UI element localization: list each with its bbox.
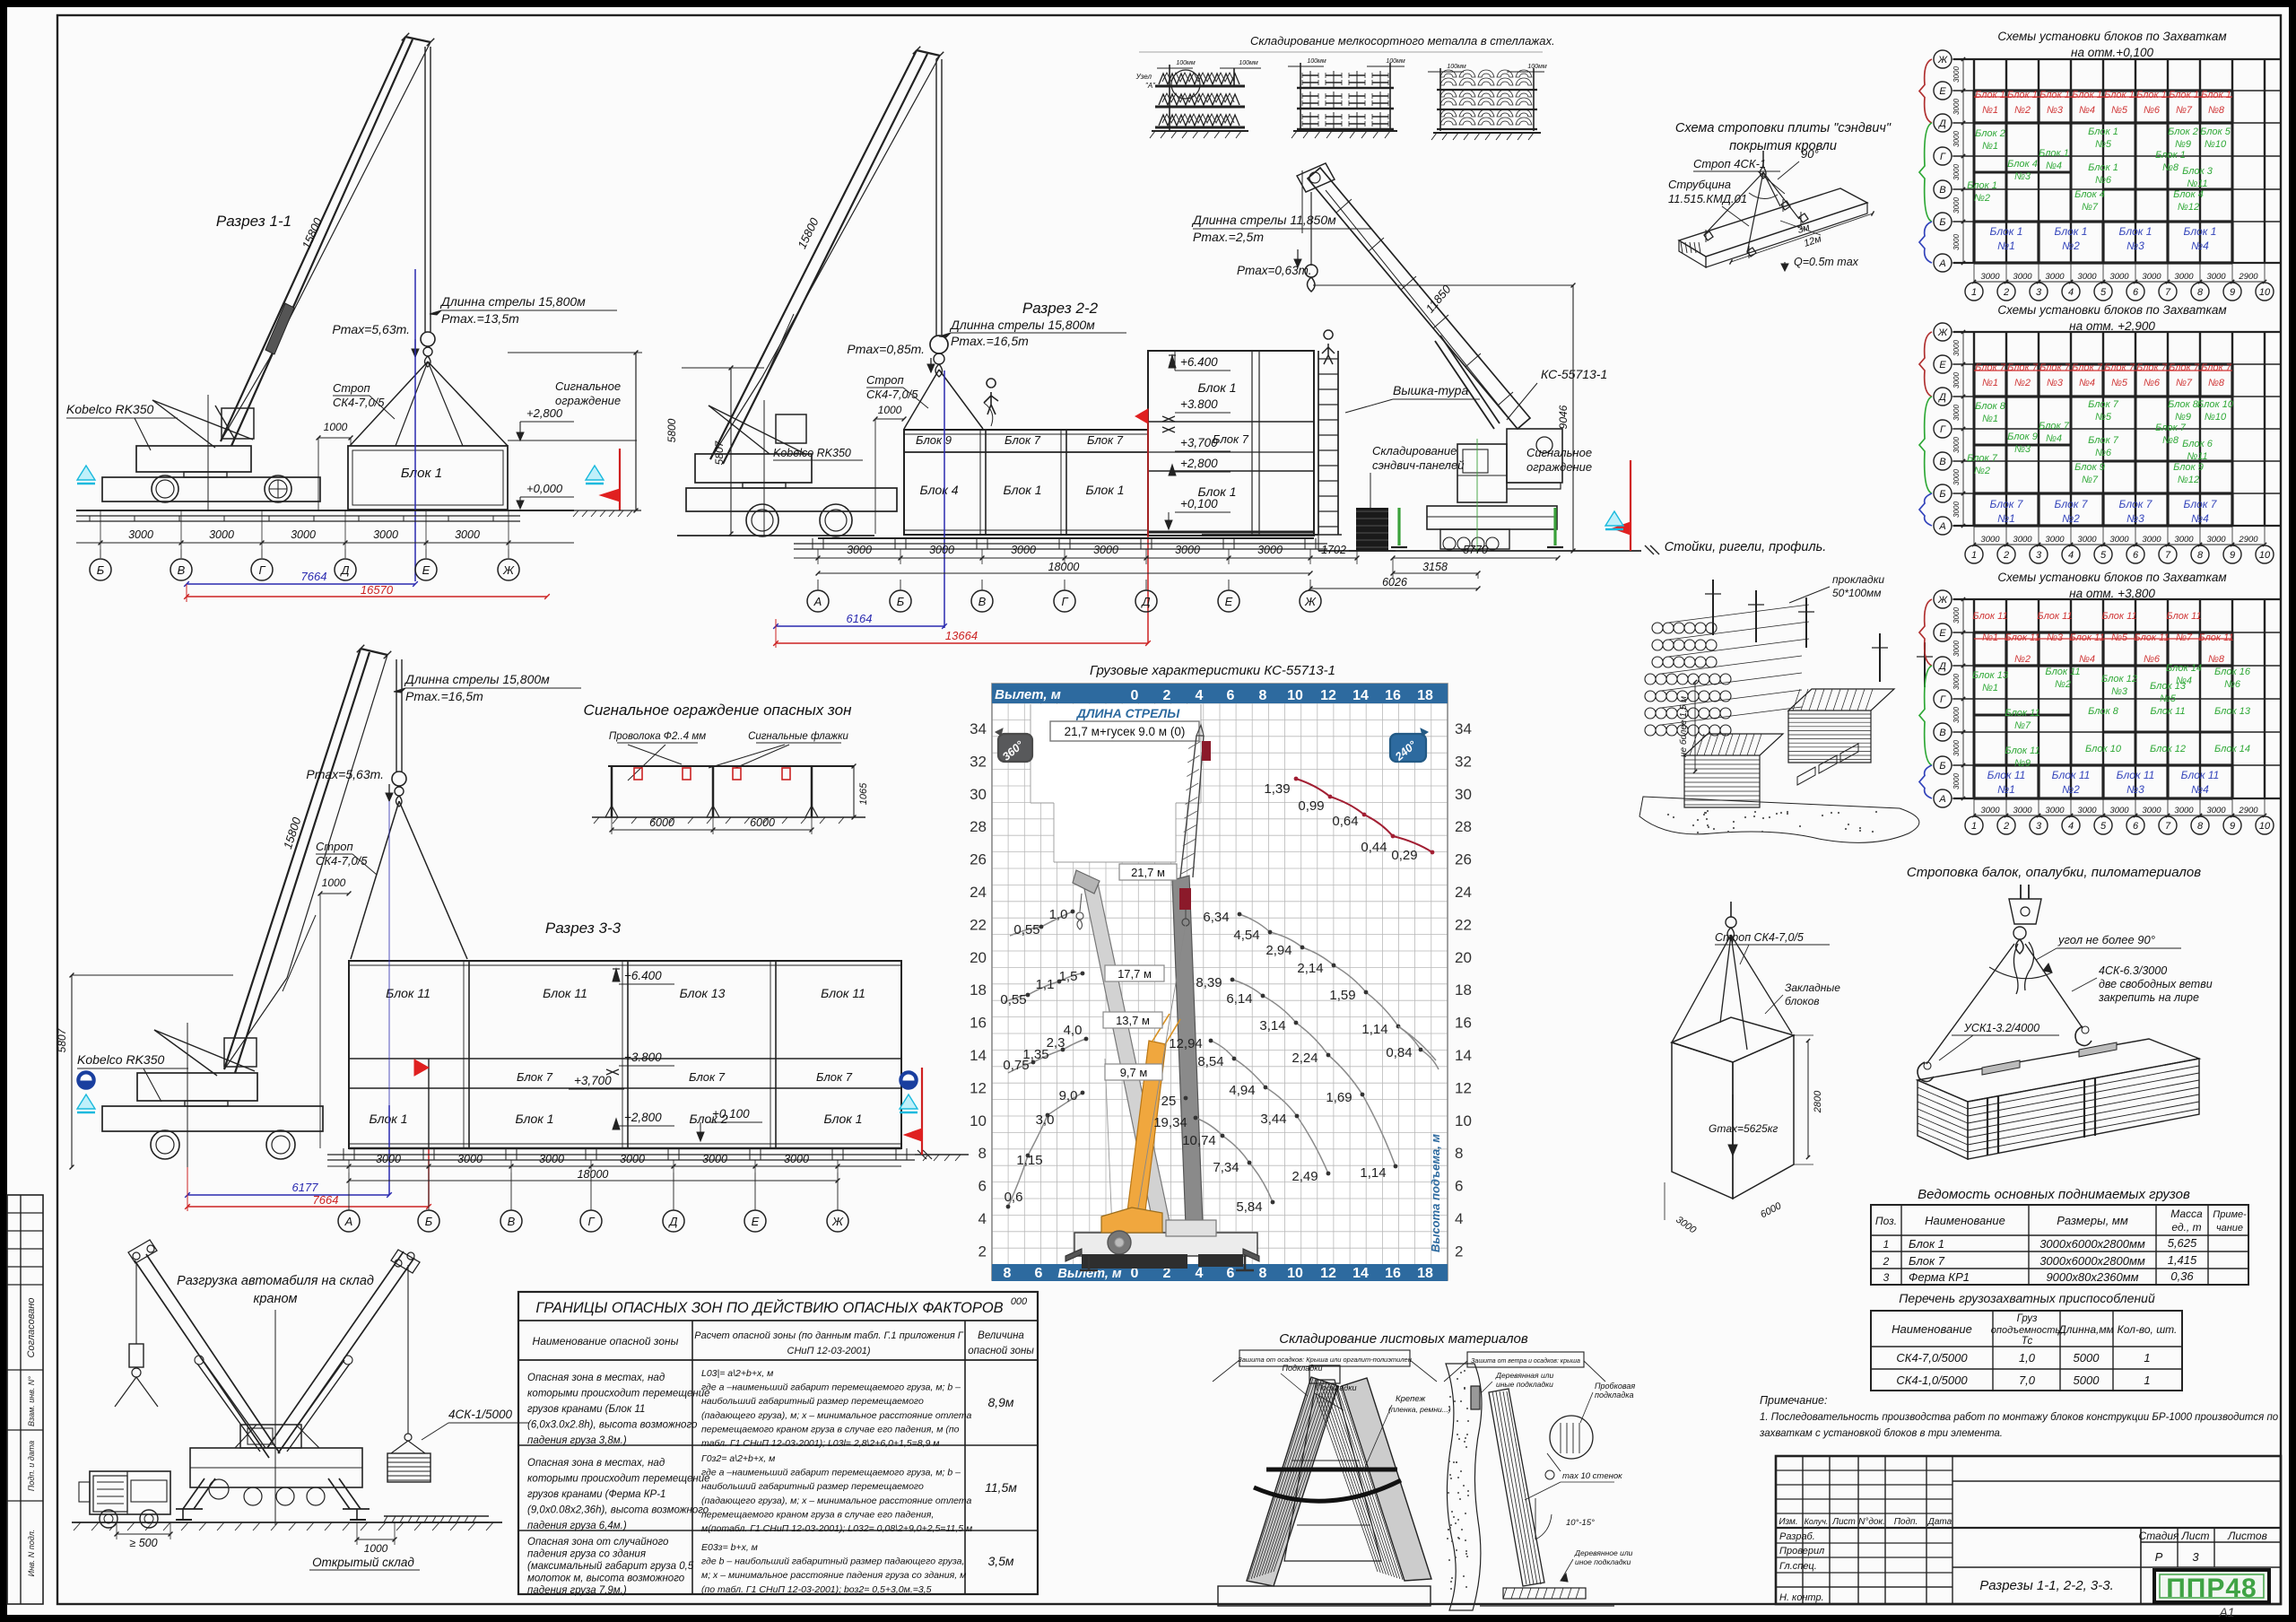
svg-text:2900: 2900 — [2238, 272, 2258, 282]
svg-text:20: 20 — [970, 949, 987, 966]
svg-text:№2: №2 — [2062, 512, 2080, 525]
svg-text:Kobelco RK350: Kobelco RK350 — [66, 402, 154, 416]
svg-text:4СК-1/5000: 4СК-1/5000 — [448, 1408, 512, 1421]
svg-text:Блок 6: Блок 6 — [2182, 439, 2213, 449]
svg-text:+3.800: +3.800 — [624, 1051, 662, 1064]
svg-text:Схемы установки блоков по Захв: Схемы установки блоков по Захваткам — [1997, 303, 2226, 317]
svg-text:+0,100: +0,100 — [1180, 497, 1218, 510]
svg-text:5000: 5000 — [2074, 1351, 2100, 1365]
svg-text:Блок 7: Блок 7 — [816, 1070, 853, 1084]
svg-text:90°: 90° — [1801, 147, 1819, 161]
svg-text:№3: №3 — [2014, 171, 2031, 182]
svg-text:3000х6000х2800мм: 3000х6000х2800мм — [2039, 1237, 2145, 1251]
svg-text:Длинна стрелы 15,800м: Длинна стрелы 15,800м — [439, 294, 586, 309]
svg-text:3000: 3000 — [2174, 272, 2194, 282]
svg-text:№12: №12 — [2178, 202, 2199, 213]
svg-text:№1: №1 — [1982, 632, 1998, 643]
svg-text:4: 4 — [1455, 1210, 1463, 1227]
svg-text:3000: 3000 — [1952, 234, 1961, 250]
svg-text:№2: №2 — [2014, 654, 2031, 665]
svg-text:№6: №6 — [2224, 679, 2241, 690]
svg-text:Г: Г — [587, 1215, 595, 1228]
svg-text:№6: №6 — [2144, 105, 2161, 116]
svg-text:№3: №3 — [2126, 512, 2144, 525]
svg-text:3000: 3000 — [2045, 806, 2065, 815]
svg-text:1065: 1065 — [858, 782, 869, 805]
svg-text:Блок 9: Блок 9 — [2173, 462, 2204, 473]
svg-text:9000х80х2360мм: 9000х80х2360мм — [2046, 1270, 2138, 1284]
svg-text:21,7 м+гусек 9.0 м (0): 21,7 м+гусек 9.0 м (0) — [1065, 725, 1186, 738]
svg-text:28: 28 — [1455, 818, 1472, 835]
svg-text:Взам. инв. N°: Взам. инв. N° — [27, 1376, 36, 1426]
svg-text:3000: 3000 — [2142, 806, 2161, 815]
svg-text:3000: 3000 — [1952, 773, 1961, 789]
svg-text:L03|= а\2+b+х, м: L03|= а\2+b+х, м — [701, 1368, 773, 1379]
svg-text:3,0: 3,0 — [1036, 1112, 1055, 1128]
svg-text:№9: №9 — [2175, 412, 2191, 423]
svg-text:КС-55713-1: КС-55713-1 — [1541, 367, 1607, 381]
svg-text:Подкладки: Подкладки — [1316, 1383, 1356, 1392]
svg-text:Блок 11: Блок 11 — [1972, 611, 2007, 622]
svg-text:7664: 7664 — [301, 570, 327, 583]
svg-text:3000: 3000 — [1952, 66, 1961, 83]
svg-text:Блок 1: Блок 1 — [2104, 90, 2135, 100]
svg-text:В: В — [178, 563, 186, 577]
svg-text:Сигнальное: Сигнальное — [555, 379, 621, 393]
svg-text:Блок 11: Блок 11 — [2069, 632, 2104, 643]
svg-text:Складирование мелкосортного ме: Складирование мелкосортного металла в ст… — [1250, 34, 1555, 48]
svg-text:Pmax=5,63т.: Pmax=5,63т. — [332, 322, 410, 336]
svg-text:18: 18 — [1417, 688, 1433, 703]
svg-text:Блок 11: Блок 11 — [2045, 667, 2080, 677]
svg-text:Сигнальное ограждение опасных: Сигнальное ограждение опасных зон — [584, 702, 853, 719]
svg-text:30: 30 — [1455, 786, 1472, 803]
svg-text:Блок 12: Блок 12 — [2150, 744, 2186, 754]
svg-text:6026: 6026 — [1382, 576, 1407, 589]
svg-text:Проволока Ф2..4 мм: Проволока Ф2..4 мм — [609, 731, 706, 742]
svg-text:10°-15°: 10°-15° — [1566, 1518, 1595, 1528]
svg-text:Складирование листовых материа: Складирование листовых материалов — [1279, 1331, 1528, 1347]
svg-text:сэндвич-панелей: сэндвич-панелей — [1372, 458, 1464, 472]
svg-text:Г: Г — [1940, 694, 1946, 705]
svg-text:13,7 м: 13,7 м — [1116, 1014, 1150, 1027]
svg-text:Г: Г — [1061, 595, 1068, 608]
svg-text:3000: 3000 — [2077, 806, 2097, 815]
svg-text:8,9м: 8,9м — [987, 1395, 1013, 1409]
svg-text:Размеры, мм: Размеры, мм — [2057, 1214, 2128, 1227]
svg-text:Д: Д — [667, 1215, 677, 1228]
svg-text:18: 18 — [1417, 1266, 1433, 1281]
svg-text:5,625: 5,625 — [2168, 1236, 2197, 1250]
svg-text:+2,800: +2,800 — [624, 1111, 662, 1124]
svg-text:12: 12 — [1320, 688, 1336, 703]
svg-text:Открытый склад: Открытый склад — [312, 1556, 414, 1569]
svg-text:6: 6 — [1035, 1266, 1043, 1281]
svg-text:Строп СК4-7,0/5: Строп СК4-7,0/5 — [1715, 931, 1804, 944]
svg-text:5770: 5770 — [1463, 544, 1488, 556]
svg-text:1: 1 — [1971, 821, 1977, 832]
svg-text:3000: 3000 — [1980, 806, 2000, 815]
svg-text:0,64: 0,64 — [1332, 814, 1358, 829]
svg-text:21,7 м: 21,7 м — [1131, 866, 1165, 879]
svg-text:1000: 1000 — [878, 404, 902, 416]
svg-text:Зашита от ветра и осадков: кры: Зашита от ветра и осадков: крыша — [1471, 1357, 1580, 1365]
svg-text:Вылет, м: Вылет, м — [995, 687, 1061, 702]
svg-text:Блок 1: Блок 1 — [2055, 225, 2088, 238]
svg-text:угол не более 90°: угол не более 90° — [2057, 933, 2155, 946]
svg-text:Блок 11: Блок 11 — [2005, 632, 2039, 643]
svg-text:3000: 3000 — [2045, 535, 2065, 545]
svg-text:табл. Г1 СНиП 12-03-2001); L03: табл. Г1 СНиП 12-03-2001); L03l= 2,8\2+6… — [701, 1438, 940, 1449]
svg-text:Ж: Ж — [1937, 327, 1948, 338]
svg-text:6000: 6000 — [649, 816, 674, 829]
svg-text:9: 9 — [2230, 287, 2235, 298]
svg-text:№2: №2 — [2014, 105, 2031, 116]
svg-text:6: 6 — [2133, 821, 2139, 832]
svg-text:Высота подъема, м: Высота подъема, м — [1429, 1134, 1442, 1252]
svg-text:1000: 1000 — [324, 421, 348, 433]
svg-text:18: 18 — [970, 981, 987, 998]
svg-text:Д: Д — [1937, 392, 1946, 403]
svg-text:8,39: 8,39 — [1196, 975, 1222, 990]
svg-text:Разрез 2-2: Разрез 2-2 — [1022, 300, 1099, 317]
svg-text:34: 34 — [970, 720, 987, 737]
svg-text:Е: Е — [1939, 628, 1946, 639]
svg-text:Е: Е — [752, 1215, 760, 1228]
svg-text:Блок 11: Блок 11 — [2005, 708, 2039, 719]
svg-text:12: 12 — [1320, 1266, 1336, 1281]
svg-text:А: А — [344, 1215, 353, 1228]
svg-text:100мм: 100мм — [1447, 64, 1465, 70]
svg-text:Д: Д — [1937, 118, 1946, 129]
svg-text:Блок 7: Блок 7 — [2104, 362, 2135, 373]
svg-text:Колуч.: Колуч. — [1805, 1517, 1829, 1526]
svg-text:Тс: Тс — [2022, 1336, 2033, 1347]
svg-text:Блок 7: Блок 7 — [2169, 362, 2200, 373]
svg-text:падения груза 3,8м.): падения груза 3,8м.) — [527, 1435, 627, 1446]
svg-text:Строп: Строп — [333, 381, 370, 395]
svg-text:8,54: 8,54 — [1197, 1054, 1223, 1069]
svg-text:(6,0х3.0х2.8h), высота возможн: (6,0х3.0х2.8h), высота возможного — [527, 1420, 698, 1431]
svg-text:Е03з= b+х, м: Е03з= b+х, м — [701, 1542, 758, 1553]
svg-text:Р: Р — [2155, 1550, 2163, 1564]
svg-text:11.515.КМД.01: 11.515.КМД.01 — [1668, 192, 1747, 205]
svg-text:Блок 11: Блок 11 — [2101, 611, 2136, 622]
svg-text:3000: 3000 — [128, 528, 153, 541]
svg-text:10: 10 — [1455, 1112, 1472, 1129]
svg-text:на отм.+0,100: на отм.+0,100 — [2071, 46, 2153, 59]
svg-text:Блок 4: Блок 4 — [2007, 159, 2038, 170]
svg-text:подкладка: подкладка — [1595, 1391, 1634, 1400]
svg-text:А: А — [1938, 521, 1945, 532]
svg-text:Блок 1: Блок 1 — [369, 1112, 407, 1126]
svg-text:3000: 3000 — [1952, 469, 1961, 485]
svg-text:Блок 1: Блок 1 — [2039, 90, 2070, 100]
svg-text:1,415: 1,415 — [2168, 1253, 2197, 1267]
svg-text:Блок 11: Блок 11 — [821, 986, 865, 1000]
svg-text:Блок 11: Блок 11 — [1987, 769, 2026, 781]
svg-text:Д: Д — [1937, 661, 1946, 672]
svg-text:№8: №8 — [2208, 654, 2225, 665]
svg-text:Грузовые характеристики КС-557: Грузовые характеристики КС-55713-1 — [1090, 663, 1335, 678]
svg-text:Разгрузка автомабиля на склад: Разгрузка автомабиля на склад — [177, 1274, 374, 1288]
svg-text:2: 2 — [1883, 1255, 1890, 1268]
svg-text:№7: №7 — [2014, 720, 2031, 731]
svg-text:Блок 9: Блок 9 — [2074, 462, 2105, 473]
svg-text:Блок 2: Блок 2 — [2168, 126, 2198, 137]
svg-text:Блок 8: Блок 8 — [2168, 399, 2199, 410]
svg-text:7,0: 7,0 — [2019, 1373, 2036, 1387]
svg-text:Приме-: Приме- — [2213, 1209, 2247, 1220]
svg-text:34: 34 — [1455, 720, 1472, 737]
svg-text:Блок 16: Блок 16 — [2214, 667, 2251, 677]
svg-text:5807: 5807 — [713, 440, 726, 465]
svg-text:3000: 3000 — [455, 528, 480, 541]
svg-text:1: 1 — [1971, 550, 1977, 561]
svg-text:Г: Г — [1940, 152, 1946, 162]
svg-text:1,39: 1,39 — [1264, 781, 1290, 797]
svg-text:4,54: 4,54 — [1233, 928, 1259, 943]
svg-text:Сигнальное: Сигнальное — [1526, 446, 1592, 459]
svg-text:Блок 1: Блок 1 — [2136, 90, 2167, 100]
svg-text:Опасная зона от случайного: Опасная зона от случайного — [527, 1537, 669, 1548]
svg-text:5000: 5000 — [2074, 1373, 2100, 1387]
svg-text:5: 5 — [2100, 550, 2107, 561]
svg-text:3000: 3000 — [209, 528, 234, 541]
svg-text:3000: 3000 — [2206, 272, 2226, 282]
svg-text:№8: №8 — [2208, 105, 2225, 116]
svg-text:Блок 13: Блок 13 — [680, 986, 726, 1000]
svg-text:+2,800: +2,800 — [526, 406, 563, 420]
svg-text:опасной зоны: опасной зоны — [968, 1346, 1034, 1356]
svg-text:50*100мм: 50*100мм — [1832, 587, 1882, 599]
svg-text:Вышка-тура: Вышка-тура — [1393, 383, 1468, 397]
svg-text:18: 18 — [1455, 981, 1472, 998]
svg-text:3000: 3000 — [2045, 272, 2065, 282]
svg-text:Блок 8: Блок 8 — [1975, 401, 2006, 412]
svg-text:3,14: 3,14 — [1259, 1018, 1285, 1033]
svg-text:Блок 7: Блок 7 — [689, 1070, 726, 1084]
svg-text:26: 26 — [970, 851, 987, 868]
svg-text:Листов: Листов — [2227, 1530, 2267, 1542]
svg-text:5800: 5800 — [665, 418, 678, 442]
svg-text:3000: 3000 — [784, 1153, 809, 1165]
svg-text:10: 10 — [2259, 550, 2271, 561]
svg-text:№1: №1 — [1982, 378, 1998, 388]
svg-text:Блок 11: Блок 11 — [386, 986, 430, 1000]
svg-text:20: 20 — [1455, 949, 1472, 966]
svg-text:№2: №2 — [1974, 466, 1990, 476]
svg-text:Пробковая: Пробковая — [1595, 1382, 1635, 1391]
svg-text:Б: Б — [1939, 489, 1945, 500]
svg-text:Согласовано: Согласовано — [26, 1297, 37, 1357]
svg-text:32: 32 — [970, 753, 987, 770]
svg-text:№3: №3 — [2126, 783, 2144, 796]
svg-text:100мм: 100мм — [1386, 58, 1405, 65]
svg-text:№5: №5 — [2095, 139, 2112, 150]
svg-text:1,5: 1,5 — [1059, 969, 1078, 984]
svg-text:"А": "А" — [1145, 82, 1156, 90]
svg-text:№6: №6 — [2095, 448, 2112, 458]
svg-text:Блок 1: Блок 1 — [515, 1112, 553, 1126]
svg-text:Схемы установки блоков по Захв: Схемы установки блоков по Захваткам — [1997, 571, 2226, 584]
svg-text:22: 22 — [1455, 916, 1472, 933]
svg-text:№3: №3 — [2047, 105, 2064, 116]
svg-text:№2: №2 — [2062, 240, 2080, 252]
svg-text:3000: 3000 — [2109, 535, 2129, 545]
svg-text:3000: 3000 — [1952, 340, 1961, 356]
svg-text:10: 10 — [2259, 821, 2271, 832]
svg-text:(максимальный габарит груза 0,: (максимальный габарит груза 0,5 — [527, 1561, 694, 1572]
svg-text:1,59: 1,59 — [1329, 988, 1355, 1003]
svg-text:Расчет опасной зоны (по данным: Расчет опасной зоны (по данным табл. Г.1… — [694, 1330, 964, 1341]
svg-text:иные подкладки: иные подкладки — [1496, 1380, 1553, 1389]
svg-text:В: В — [978, 595, 987, 608]
svg-text:3000: 3000 — [1952, 131, 1961, 147]
svg-text:(9,0х0.08х2,36h), высота возмо: (9,0х0.08х2,36h), высота возможного — [527, 1505, 709, 1516]
svg-text:28: 28 — [970, 818, 987, 835]
svg-text:4: 4 — [2068, 821, 2074, 832]
svg-text:А: А — [813, 595, 822, 608]
svg-text:10: 10 — [2259, 287, 2271, 298]
svg-text:Разраб.: Разраб. — [1779, 1531, 1815, 1542]
svg-text:№7: №7 — [2176, 632, 2193, 643]
svg-text:3000: 3000 — [1952, 99, 1961, 115]
svg-text:7: 7 — [2165, 821, 2171, 832]
svg-text:1,1: 1,1 — [1036, 977, 1055, 992]
svg-text:3000: 3000 — [2013, 535, 2032, 545]
svg-text:Блок 1: Блок 1 — [2039, 148, 2069, 159]
svg-text:наибольший габаритный размер п: наибольший габаритный размер перемещаемо… — [701, 1481, 924, 1492]
svg-text:две свободных ветви: две свободных ветви — [2099, 978, 2213, 990]
svg-text:ограждение: ограждение — [555, 394, 621, 407]
svg-text:Блок 1: Блок 1 — [1967, 180, 1997, 191]
svg-text:ед., т: ед., т — [2171, 1221, 2201, 1234]
svg-text:(пленка, ремни...): (пленка, ремни...) — [1388, 1405, 1451, 1414]
svg-text:3000: 3000 — [1980, 535, 2000, 545]
svg-text:Г: Г — [258, 563, 265, 577]
svg-text:7,34: 7,34 — [1213, 1160, 1239, 1175]
svg-text:Лист: Лист — [2181, 1530, 2210, 1542]
svg-text:Ж: Ж — [831, 1215, 844, 1228]
svg-text:Масса: Масса — [2170, 1208, 2203, 1220]
svg-text:1: 1 — [2144, 1373, 2150, 1387]
svg-text:Блок 3: Блок 3 — [2182, 166, 2213, 177]
svg-text:№4: №4 — [2191, 783, 2209, 796]
svg-text:3000: 3000 — [1952, 641, 1961, 657]
svg-text:6000: 6000 — [750, 816, 775, 829]
svg-text:Блок 7: Блок 7 — [1975, 362, 2006, 373]
svg-text:ППР48: ППР48 — [2166, 1574, 2257, 1603]
svg-text:3000: 3000 — [1980, 272, 2000, 282]
svg-text:№3: №3 — [2047, 632, 2064, 643]
svg-text:ограждение: ограждение — [1526, 460, 1592, 474]
svg-text:Блок 1: Блок 1 — [823, 1112, 862, 1126]
svg-text:СК4-7,0/5000: СК4-7,0/5000 — [1896, 1351, 1968, 1365]
svg-text:№5: №5 — [2111, 632, 2128, 643]
svg-text:1: 1 — [2144, 1351, 2150, 1365]
svg-text:4,0: 4,0 — [1064, 1023, 1083, 1038]
svg-text:Наименование: Наименование — [1892, 1322, 1972, 1336]
svg-text:24: 24 — [970, 884, 987, 901]
svg-text:Блок 7: Блок 7 — [1087, 433, 1124, 447]
svg-text:13664: 13664 — [945, 629, 978, 642]
svg-text:Д: Д — [1140, 595, 1150, 608]
svg-text:Деревянное или: Деревянное или — [1574, 1548, 1633, 1557]
svg-text:Блок 1: Блок 1 — [2088, 126, 2118, 137]
svg-text:8: 8 — [2197, 821, 2204, 832]
svg-text:5: 5 — [2100, 287, 2107, 298]
svg-text:Блок 1: Блок 1 — [2155, 150, 2186, 161]
svg-text:Блок 7: Блок 7 — [2007, 362, 2039, 373]
svg-text:Складирование: Складирование — [1372, 444, 1457, 458]
svg-text:2800: 2800 — [1813, 1090, 1823, 1113]
svg-text:5: 5 — [2100, 821, 2107, 832]
svg-text:Крепеж: Крепеж — [1396, 1394, 1426, 1404]
svg-text:Разрез 1-1: Разрез 1-1 — [216, 213, 291, 230]
svg-text:Наименование опасной зоны: Наименование опасной зоны — [533, 1335, 679, 1347]
svg-text:2: 2 — [1163, 688, 1171, 703]
svg-text:1,14: 1,14 — [1361, 1022, 1387, 1037]
svg-text:№5: №5 — [2160, 693, 2177, 704]
svg-text:2: 2 — [2003, 287, 2009, 298]
svg-text:18000: 18000 — [1048, 561, 1080, 573]
svg-text:Лист: Лист — [1831, 1517, 1856, 1527]
svg-text:3000: 3000 — [1952, 372, 1961, 388]
svg-text:Блок 11: Блок 11 — [2198, 632, 2233, 643]
svg-text:СК4-1,0/5000: СК4-1,0/5000 — [1896, 1373, 1968, 1387]
svg-text:3000: 3000 — [2142, 535, 2161, 545]
svg-text:Блок 1: Блок 1 — [1085, 483, 1124, 497]
svg-text:4СК-6.3/3000: 4СК-6.3/3000 — [2099, 964, 2167, 977]
svg-text:закрепить на лире: закрепить на лире — [2098, 991, 2199, 1004]
svg-text:11,5м: 11,5м — [985, 1480, 1017, 1495]
svg-text:№5: №5 — [2111, 378, 2128, 388]
svg-text:0,44: 0,44 — [1361, 840, 1387, 855]
svg-text:2,14: 2,14 — [1297, 961, 1323, 976]
svg-text:Pmax=0,63т.: Pmax=0,63т. — [1237, 264, 1312, 277]
svg-text:3000: 3000 — [1952, 437, 1961, 453]
svg-text:1. Последовательность производ: 1. Последовательность производства работ… — [1760, 1412, 2279, 1423]
svg-text:3000: 3000 — [1952, 607, 1961, 624]
svg-text:Перечень грузозахватных приспо: Перечень грузозахватных приспособлений — [1899, 1291, 2155, 1305]
svg-text:Поз.: Поз. — [1875, 1215, 1897, 1227]
svg-text:26: 26 — [1455, 851, 1472, 868]
svg-text:Б: Б — [1939, 217, 1945, 228]
svg-text:А1: А1 — [2218, 1605, 2234, 1619]
svg-text:Ж: Ж — [1937, 55, 1948, 65]
svg-text:падения груза 7,9м.): падения груза 7,9м.) — [527, 1585, 627, 1596]
svg-text:№10: №10 — [2205, 139, 2227, 150]
svg-text:4: 4 — [2068, 550, 2074, 561]
svg-text:Блок 13: Блок 13 — [2214, 706, 2251, 717]
svg-text:Ж: Ж — [1937, 595, 1948, 606]
svg-text:Gmax=5625кг: Gmax=5625кг — [1709, 1122, 1778, 1135]
svg-text:100мм: 100мм — [1176, 60, 1195, 66]
svg-text:+3,700: +3,700 — [1180, 436, 1218, 449]
svg-text:Сигнальные флажки: Сигнальные флажки — [748, 731, 848, 742]
svg-text:1702: 1702 — [1321, 544, 1346, 556]
svg-text:№4: №4 — [2079, 105, 2095, 116]
svg-text:Ж: Ж — [502, 563, 515, 577]
svg-text:2,94: 2,94 — [1265, 943, 1291, 958]
svg-text:Pmax.=13,5m: Pmax.=13,5m — [441, 311, 519, 326]
svg-text:Блок 7: Блок 7 — [1004, 433, 1041, 447]
svg-text:1000: 1000 — [322, 876, 346, 889]
svg-text:Подп. и дата: Подп. и дата — [27, 1441, 36, 1491]
svg-text:А: А — [1938, 794, 1945, 805]
svg-text:6,14: 6,14 — [1226, 991, 1252, 1007]
